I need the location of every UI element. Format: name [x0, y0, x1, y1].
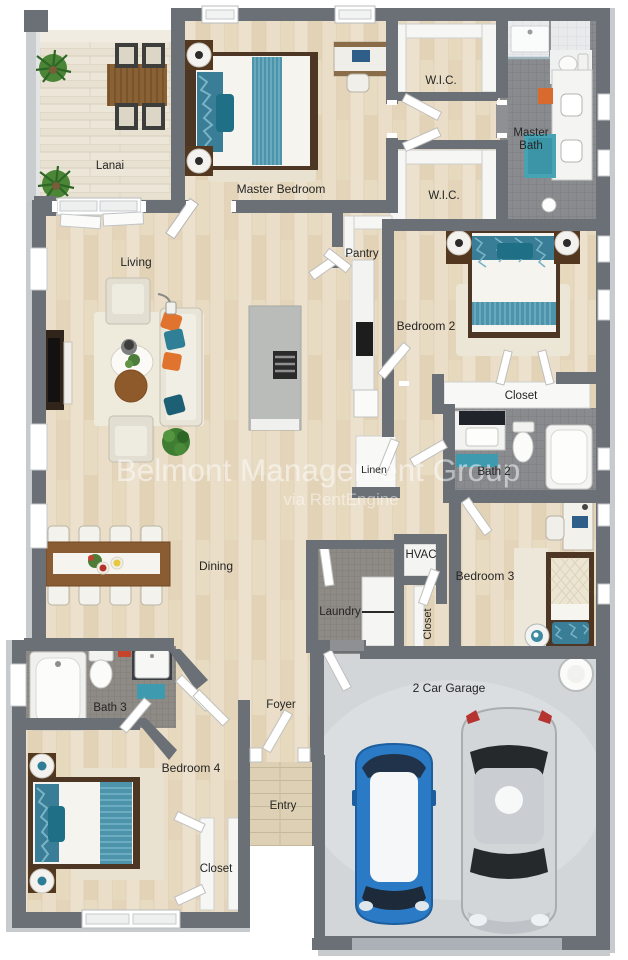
svg-text:Closet: Closet: [422, 608, 434, 639]
svg-text:2 Car Garage: 2 Car Garage: [413, 681, 486, 695]
svg-text:Living: Living: [120, 255, 151, 269]
svg-text:HVAC: HVAC: [405, 549, 436, 561]
svg-text:Bedroom 3: Bedroom 3: [456, 569, 515, 583]
svg-text:Closet: Closet: [505, 390, 538, 402]
svg-text:Bath 3: Bath 3: [93, 702, 126, 714]
svg-text:Foyer: Foyer: [266, 699, 296, 711]
svg-text:Master Bedroom: Master Bedroom: [237, 182, 326, 196]
svg-text:Bedroom 4: Bedroom 4: [162, 761, 221, 775]
svg-text:W.I.C.: W.I.C.: [428, 190, 459, 202]
svg-text:Master: Master: [513, 127, 548, 139]
svg-text:Pantry: Pantry: [345, 248, 378, 260]
svg-text:Bath 2: Bath 2: [477, 466, 510, 478]
svg-text:Laundry: Laundry: [319, 606, 361, 618]
svg-text:via RentEngine: via RentEngine: [283, 490, 398, 509]
svg-text:Dining: Dining: [199, 559, 233, 573]
svg-text:Linen: Linen: [361, 464, 387, 476]
svg-text:W.I.C.: W.I.C.: [425, 75, 456, 87]
svg-text:Entry: Entry: [270, 800, 297, 812]
svg-text:Bedroom 2: Bedroom 2: [397, 319, 456, 333]
svg-text:Bath: Bath: [519, 140, 543, 152]
svg-text:Lanai: Lanai: [96, 160, 124, 172]
svg-text:Closet: Closet: [200, 863, 233, 875]
svg-text:Belmont Management Group: Belmont Management Group: [116, 452, 520, 488]
